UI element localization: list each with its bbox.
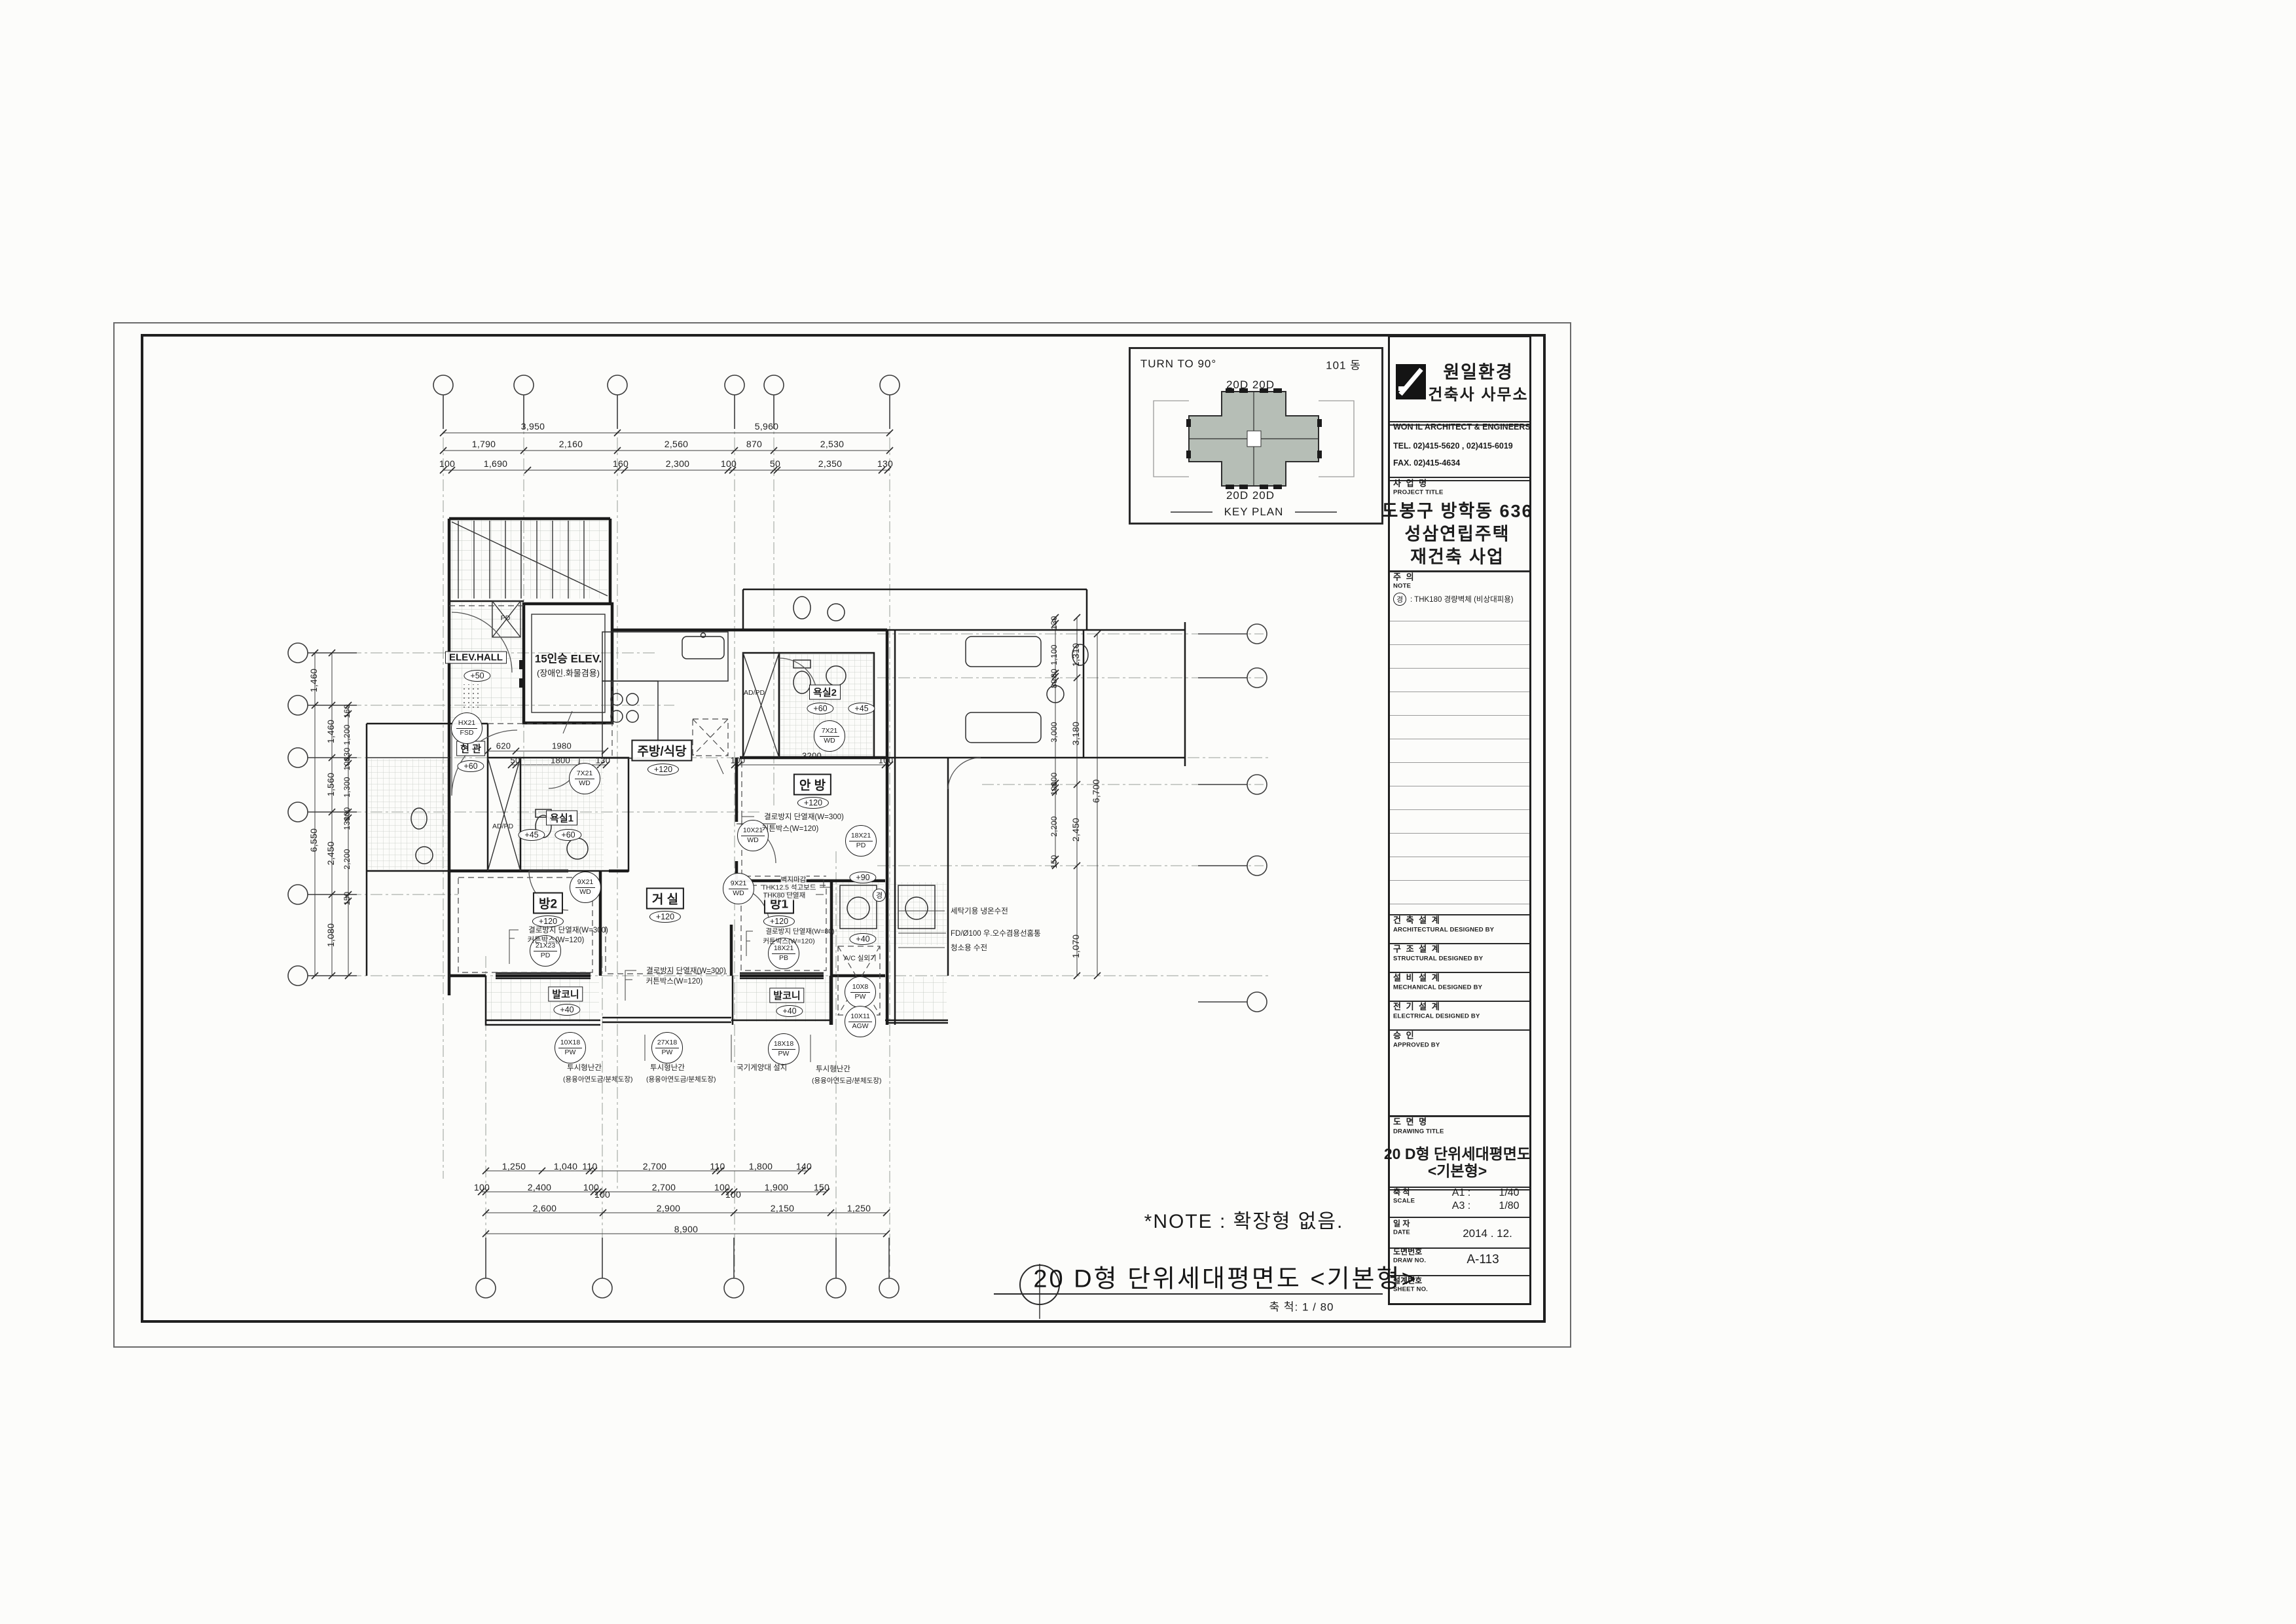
dim: 100 <box>721 458 737 469</box>
dim: 1,300 <box>342 777 352 798</box>
level-master: +120 <box>797 797 829 809</box>
dim: 1,460 <box>325 720 336 744</box>
project-title-line2: 성삼연립주택 <box>1404 520 1510 545</box>
room-label-master: 안 방 <box>793 774 831 796</box>
scale-a1-value: 1/40 <box>1499 1187 1519 1199</box>
dim: 1,560 <box>325 773 336 797</box>
note-living-insulation: 결로방지 단열재(W=300) <box>646 965 726 976</box>
dim: 1,250 <box>502 1161 526 1172</box>
note-fd-pipe: FD/Ø100 우.오수겸용선홈통 <box>951 928 1041 938</box>
key-plan-building-no: 101 동 <box>1326 356 1361 373</box>
level-balcony2: +40 <box>776 1005 803 1017</box>
level-balcony1: +40 <box>553 1004 580 1016</box>
room-label-living: 거 실 <box>646 888 684 910</box>
dim: 1,460 <box>308 669 319 693</box>
scale-a1-label: A1 : <box>1452 1187 1470 1199</box>
firm-tel: TEL. 02)415-5620 , 02)415-6019 <box>1393 441 1513 451</box>
project-label-kr: 사 업 명 <box>1393 477 1428 489</box>
plan-title-caption: 20 D형 단위세대평면도 <기본형> <box>1033 1259 1417 1295</box>
tb-rule <box>1390 809 1529 810</box>
dim: 100 <box>594 1189 610 1200</box>
note-rail2: 투시형난간 <box>650 1062 685 1073</box>
firm-name-en: WON IL ARCHITECT & ENGINEERS <box>1393 422 1531 432</box>
level-bath1-a: +45 <box>518 829 545 841</box>
dim: 2,700 <box>652 1182 676 1192</box>
key-plan-turn-label: TURN TO 90° <box>1140 358 1216 371</box>
dim: 1,100 <box>1049 644 1059 665</box>
tb-divider <box>1390 1217 1529 1218</box>
note-room1-insulation80: THK80 단열재 <box>763 891 806 900</box>
tag-master-balcony-door: 18X21PD <box>845 825 877 857</box>
dim: 2,350 <box>818 458 843 469</box>
dim: 2,300 <box>666 458 690 469</box>
dim: 1,800 <box>749 1161 773 1172</box>
firm-fax: FAX. 02)415-4634 <box>1393 458 1460 468</box>
dim: 80 <box>1049 669 1059 678</box>
key-plan-bottom-units: 20D 20D <box>1226 489 1275 502</box>
dim: 50 <box>770 458 780 469</box>
dim: 3,180 <box>1070 722 1081 746</box>
elec-designer-label-en: ELECTRICAL DESIGNED BY <box>1393 1013 1480 1020</box>
note-room1-curtainbox: 커튼박스(W=120) <box>763 936 814 946</box>
room-label-balcony2: 발코니 <box>769 988 804 1003</box>
room-label-adpd1: AD/PD <box>492 822 513 830</box>
struct-designer-label-en: STRUCTURAL DESIGNED BY <box>1393 955 1483 963</box>
firm-name-kr1: 원일환경 <box>1443 358 1513 384</box>
level-bath2-b: +45 <box>848 703 875 714</box>
room-label-bath1: 욕실1 <box>546 811 577 826</box>
dim: 130 <box>877 458 893 469</box>
elec-designer-label-kr: 전 기 설 계 <box>1393 1000 1441 1012</box>
room-label-room2: 방2 <box>533 893 563 914</box>
plan-scale-caption: 축 척: 1 / 80 <box>1269 1298 1334 1314</box>
note-room2-insulation: 결로방지 단열재(W=300) <box>528 925 608 935</box>
note-label-kr: 주 의 <box>1393 570 1415 583</box>
level-bath1-b: +60 <box>555 829 581 841</box>
wall-type-symbol: 경 <box>873 889 886 902</box>
dim: 3,950 <box>521 421 545 432</box>
dim: 870 <box>746 439 762 449</box>
tag-balcony2-window: 18X18PW <box>768 1033 799 1065</box>
dim: 2,600 <box>533 1203 557 1213</box>
dim: 110 <box>582 1161 597 1172</box>
dim: 100 <box>474 1182 490 1192</box>
dim: 130 <box>596 756 611 766</box>
tb-rule <box>1390 833 1529 834</box>
dim: 100 <box>1049 782 1059 796</box>
dim: 1,790 <box>472 439 496 449</box>
tag-entry-door: HX21FSD <box>451 712 483 744</box>
dim: 140 <box>796 1161 812 1172</box>
note-cleaning-faucet: 청소용 수전 <box>951 942 987 953</box>
dim: 1,200 <box>342 724 352 745</box>
level-living: +120 <box>649 911 681 923</box>
dim: 100 <box>342 757 352 771</box>
dim: 160 <box>613 458 629 469</box>
note-master-curtainbox: 커튼박스(W=120) <box>762 823 819 834</box>
note-rail2-finish: (용융아연도금/분체도장) <box>646 1075 716 1084</box>
drawing-title-label-kr: 도 면 명 <box>1393 1115 1428 1128</box>
note-room1-insulation-w80: 결로방지 단열재(W=80) <box>765 927 834 936</box>
date-label-kr: 일 자 <box>1393 1218 1410 1229</box>
date-label-en: DATE <box>1393 1229 1410 1236</box>
dim: 100 <box>439 458 455 469</box>
dim: 50 <box>510 756 520 766</box>
dim: 2,560 <box>665 439 689 449</box>
dim: 1,070 <box>1070 934 1081 959</box>
dim: 1980 <box>552 741 572 751</box>
dim: 620 <box>496 741 511 751</box>
dim: 8,900 <box>674 1224 699 1234</box>
tb-rule <box>1390 692 1529 692</box>
tag-living-window: 27X18PW <box>651 1032 683 1063</box>
note-washer-valve: 세탁기용 냉온수전 <box>951 906 1008 916</box>
dim: 160 <box>342 705 352 718</box>
tb-rule <box>1390 739 1529 739</box>
key-plan-top-units: 20D 20D <box>1226 378 1275 392</box>
note-rail1-finish: (용융아연도금/분체도장) <box>563 1075 633 1084</box>
dim: 100 <box>725 1189 741 1200</box>
dim: 1,250 <box>847 1203 871 1213</box>
dim: 150 <box>1049 855 1059 869</box>
level-room1: +120 <box>763 915 795 927</box>
dim: 6,700 <box>1091 779 1101 803</box>
dim: 1,040 <box>554 1161 578 1172</box>
room-label-pd: PD <box>501 614 511 622</box>
tag-room1-door: 9X21WD <box>723 873 754 904</box>
note-label-en: NOTE <box>1393 583 1411 590</box>
drawing-title-label-en: DRAWING TITLE <box>1393 1128 1444 1135</box>
dim: 110 <box>710 1161 725 1172</box>
dim: 2,200 <box>1049 816 1059 837</box>
tb-rule <box>1390 644 1529 645</box>
approved-label-en: APPROVED BY <box>1393 1042 1440 1049</box>
note-master-insulation: 결로방지 단열재(W=300) <box>764 811 844 822</box>
scanned-drawing-sheet: TURN TO 90° 101 동 20D 20D 20D 20D KEY PL… <box>0 0 2296 1624</box>
project-label-en: PROJECT TITLE <box>1393 489 1444 496</box>
tag-bath1-door: 7X21WD <box>569 763 600 794</box>
drawno-value: A-113 <box>1467 1253 1499 1267</box>
dim: 2,400 <box>528 1182 552 1192</box>
dim: 1,690 <box>484 458 508 469</box>
note-rail3-finish: (용융아연도금/분체도장) <box>812 1076 882 1086</box>
arch-designer-label-kr: 건 축 설 계 <box>1393 913 1441 926</box>
tag-bath2-door: 7X21WD <box>814 720 845 752</box>
dim: 150 <box>342 892 352 906</box>
room-label-elevator-sub: (장애인.화물겸용) <box>537 667 600 679</box>
dim: 2,160 <box>559 439 583 449</box>
project-title-line3: 재건축 사업 <box>1410 543 1504 568</box>
dim: 100 <box>731 756 746 766</box>
scale-label-kr: 축 척 <box>1393 1187 1410 1198</box>
dim: 130 <box>1049 616 1059 630</box>
dim: 2,530 <box>820 439 845 449</box>
tb-rule <box>1390 621 1529 621</box>
mech-designer-label-en: MECHANICAL DESIGNED BY <box>1393 984 1482 991</box>
room-label-bath2: 욕실2 <box>809 685 841 700</box>
plan-note-caption: *NOTE : 확장형 없음. <box>1144 1205 1344 1234</box>
note-living-curtainbox: 커튼박스(W=120) <box>646 976 703 986</box>
tb-rule <box>1390 904 1529 904</box>
project-title-line1: 도봉구 방학동 636 <box>1381 497 1533 523</box>
approved-label-kr: 승 인 <box>1393 1029 1415 1041</box>
dim: 2,900 <box>657 1203 681 1213</box>
room-label-kitchen: 주방/식당 <box>631 740 692 762</box>
tag-balcony1-window: 10X18PW <box>555 1032 586 1063</box>
level-utility-a: +90 <box>849 872 876 883</box>
dim: 80 <box>1049 679 1059 688</box>
room-label-balcony1: 발코니 <box>548 987 583 1002</box>
tag-utility-agw: 10X11AGW <box>845 1006 876 1037</box>
room-label-adpd2: AD/PD <box>744 689 765 697</box>
room-label-ac-unit: A/C 실외기 <box>844 953 876 963</box>
date-value: 2014 . 12. <box>1463 1227 1512 1240</box>
key-plan-caption: KEY PLAN <box>1224 506 1284 519</box>
dim: 3200 <box>802 751 822 761</box>
tag-room2-door: 9X21WD <box>570 872 601 903</box>
dim: 6,550 <box>308 828 319 853</box>
dim: 2,150 <box>771 1203 795 1213</box>
struct-designer-label-kr: 구 조 설 계 <box>1393 942 1441 955</box>
tb-rule <box>1390 857 1529 857</box>
room-label-elevator: 15인승 ELEV. <box>535 650 602 666</box>
note-rail3: 투시형난간 <box>816 1063 850 1074</box>
dim: 1800 <box>551 756 570 766</box>
dim: 100 <box>879 756 894 766</box>
note-room2-curtainbox: 커튼박스(W=120) <box>528 934 585 945</box>
drawno-label-kr: 도면번호 <box>1393 1246 1422 1257</box>
dim: 3,000 <box>1049 722 1059 743</box>
tb-rule <box>1390 786 1529 786</box>
level-kitchen: +120 <box>647 764 679 775</box>
tb-rule <box>1390 880 1529 881</box>
tb-rule <box>1390 668 1529 669</box>
arch-designer-label-en: ARCHITECTURAL DESIGNED BY <box>1393 927 1494 934</box>
dim: 2,450 <box>1070 818 1081 842</box>
drawing-title-line2: <기본형> <box>1428 1158 1487 1181</box>
dim: 1,900 <box>765 1182 789 1192</box>
note-text: : THK180 경량벽체 (비상대피용) <box>1410 594 1514 604</box>
scale-a3-label: A3 : <box>1452 1200 1470 1212</box>
level-elev-hall: +50 <box>464 670 490 682</box>
tb-rule <box>1390 715 1529 716</box>
room-label-elev-hall: ELEV.HALL <box>445 652 507 664</box>
note-flagpole: 국기게양대 설치 <box>737 1062 787 1073</box>
dim: 5,960 <box>755 421 779 432</box>
tb-rule <box>1390 762 1529 763</box>
dim: 2,200 <box>342 849 352 870</box>
dim: 2,450 <box>325 841 336 866</box>
mech-designer-label-kr: 설 비 설 계 <box>1393 971 1441 984</box>
dim: 150 <box>814 1182 829 1192</box>
tag-utility-window: 10X8PW <box>845 976 876 1008</box>
dim: 1,080 <box>325 923 336 948</box>
scale-label-en: SCALE <box>1393 1198 1415 1205</box>
note-rail1: 투시형난간 <box>567 1062 602 1073</box>
level-entry: +60 <box>457 760 484 772</box>
firm-name-kr2: 건축사 사무소 <box>1428 382 1528 405</box>
level-bath2-a: +60 <box>807 703 833 714</box>
dim: 2,700 <box>643 1161 667 1172</box>
dim: 1,310 <box>1070 643 1081 667</box>
note-symbol-circle: 경 <box>1393 593 1406 606</box>
dim: 130 <box>342 817 352 830</box>
scale-a3-value: 1/80 <box>1499 1200 1519 1212</box>
level-utility-b: +40 <box>849 933 876 945</box>
